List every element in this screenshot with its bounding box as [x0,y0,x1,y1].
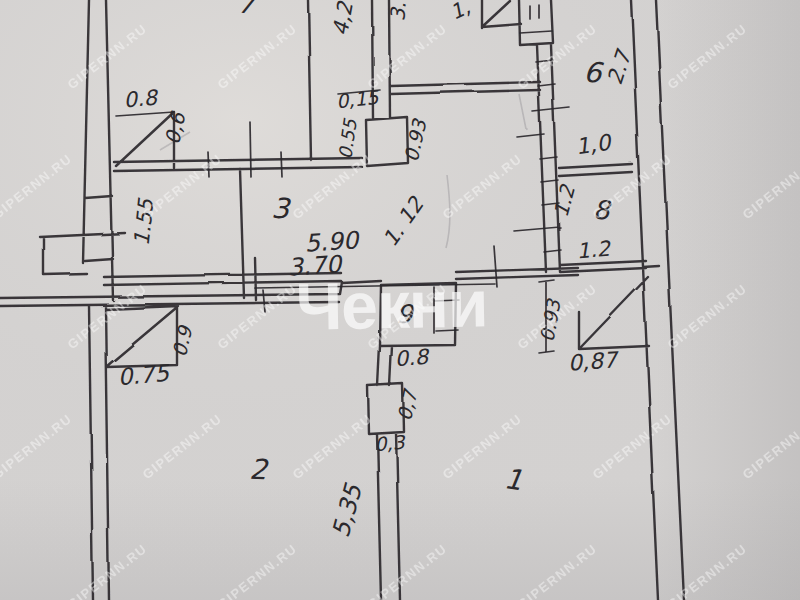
center-watermark: Чекни [295,266,488,343]
room-label-2: 2 [249,453,270,487]
dim-room8-bottom: 1.2 [576,236,613,263]
room-label-3: 3 [271,192,292,226]
dim-door1-width: 0,87 [567,347,621,376]
dim-duct-03: 0,3 [373,431,407,456]
dim-room9-width: 0.8 [394,345,431,371]
floor-plan-photo: 7 3 6 8 9 2 1 0.8 0,6 1.55 4,2 3. 0,15 0… [0,0,800,600]
floor-plan-canvas: 7 3 6 8 9 2 1 0.8 0,6 1.55 4,2 3. 0,15 0… [0,0,800,600]
dim-room6-width: 1,0 [574,129,614,159]
dim-door2-width: 0.75 [117,360,172,390]
dim-door7-width: 0.8 [123,85,160,112]
dim-top-3dot: 3. [385,1,411,22]
